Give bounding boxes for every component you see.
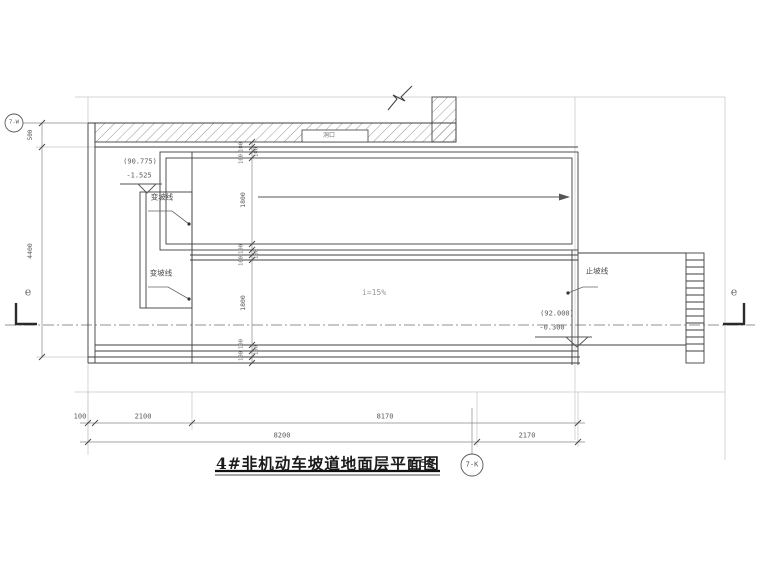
slope-change-line-label-1: 变坡线 — [151, 193, 174, 201]
cad-plan-drawing: 7-W 500 4400 (90.775) -1.525 变坡线 变坡线 止坡线… — [0, 0, 760, 570]
plan-linework — [0, 0, 760, 570]
dim-chain-bot-1: 100 — [239, 339, 245, 349]
dim-chain-top-1: 100 — [239, 142, 245, 152]
elevation-symbols — [120, 184, 592, 347]
dim-500: 500 — [28, 130, 34, 141]
slope-stop-line-label: 止坡线 — [586, 267, 609, 275]
elevation-relative-upper: -1.525 — [126, 173, 151, 180]
dim-chain-mid-2: 100 — [239, 256, 245, 266]
walls-and-ramp — [88, 123, 704, 365]
stair-grille-block — [686, 253, 704, 363]
dim-chain-bot-3: 100 — [254, 345, 260, 355]
break-line-symbol — [388, 86, 412, 110]
dim-chain-mid-1: 100 — [239, 244, 245, 254]
drawing-scale: 1:50 — [407, 457, 434, 470]
section-marker-left-label: e — [25, 287, 32, 298]
dim-lane-upper-1800: 1800 — [240, 192, 247, 208]
elevation-absolute-lower: (92.000) — [540, 311, 574, 318]
dimension-lines — [23, 123, 585, 454]
grid-guides — [36, 97, 725, 460]
dim-chain-bot-2: 100 — [239, 351, 245, 361]
slope-value-label: i=15% — [362, 289, 386, 297]
wall-opening-label: 洞口 — [323, 133, 335, 139]
dimension-ticks — [39, 120, 581, 445]
dim-row1-100: 100 — [74, 414, 87, 421]
dim-chain-top-2: 100 — [239, 154, 245, 164]
dim-chain-mid-3: 100 — [254, 249, 260, 259]
hatched-wall — [88, 86, 456, 142]
dim-lane-lower-1800: 1800 — [240, 295, 247, 311]
section-marker-shapes — [16, 303, 744, 324]
dim-row2-8200: 8200 — [274, 433, 291, 440]
slope-change-line-label-2: 变坡线 — [150, 269, 173, 277]
dim-row1-8170: 8170 — [377, 414, 394, 421]
grid-bubble-bottom: 7-K — [466, 462, 479, 469]
ramp-direction-arrow — [258, 194, 570, 201]
grid-bubble-top-left: 7-W — [9, 120, 19, 126]
elevation-relative-lower: -0.300 — [539, 325, 564, 332]
dim-row1-2100: 2100 — [135, 414, 152, 421]
dim-row2-2170: 2170 — [519, 433, 536, 440]
elevation-absolute-upper: (90.775) — [123, 159, 157, 166]
dim-chain-top-3: 100 — [254, 147, 260, 157]
dim-4400: 4400 — [27, 243, 34, 259]
section-marker-right-label: e — [731, 287, 738, 298]
